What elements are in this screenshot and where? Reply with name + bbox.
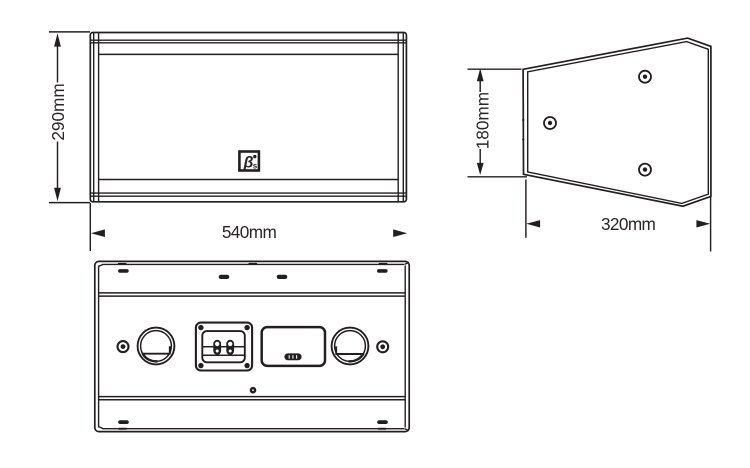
svg-text:180mm: 180mm — [473, 92, 493, 149]
svg-text:290mm: 290mm — [48, 83, 68, 140]
svg-text:320mm: 320mm — [601, 214, 656, 234]
svg-text:s: s — [253, 162, 258, 171]
svg-text:540mm: 540mm — [222, 222, 277, 242]
